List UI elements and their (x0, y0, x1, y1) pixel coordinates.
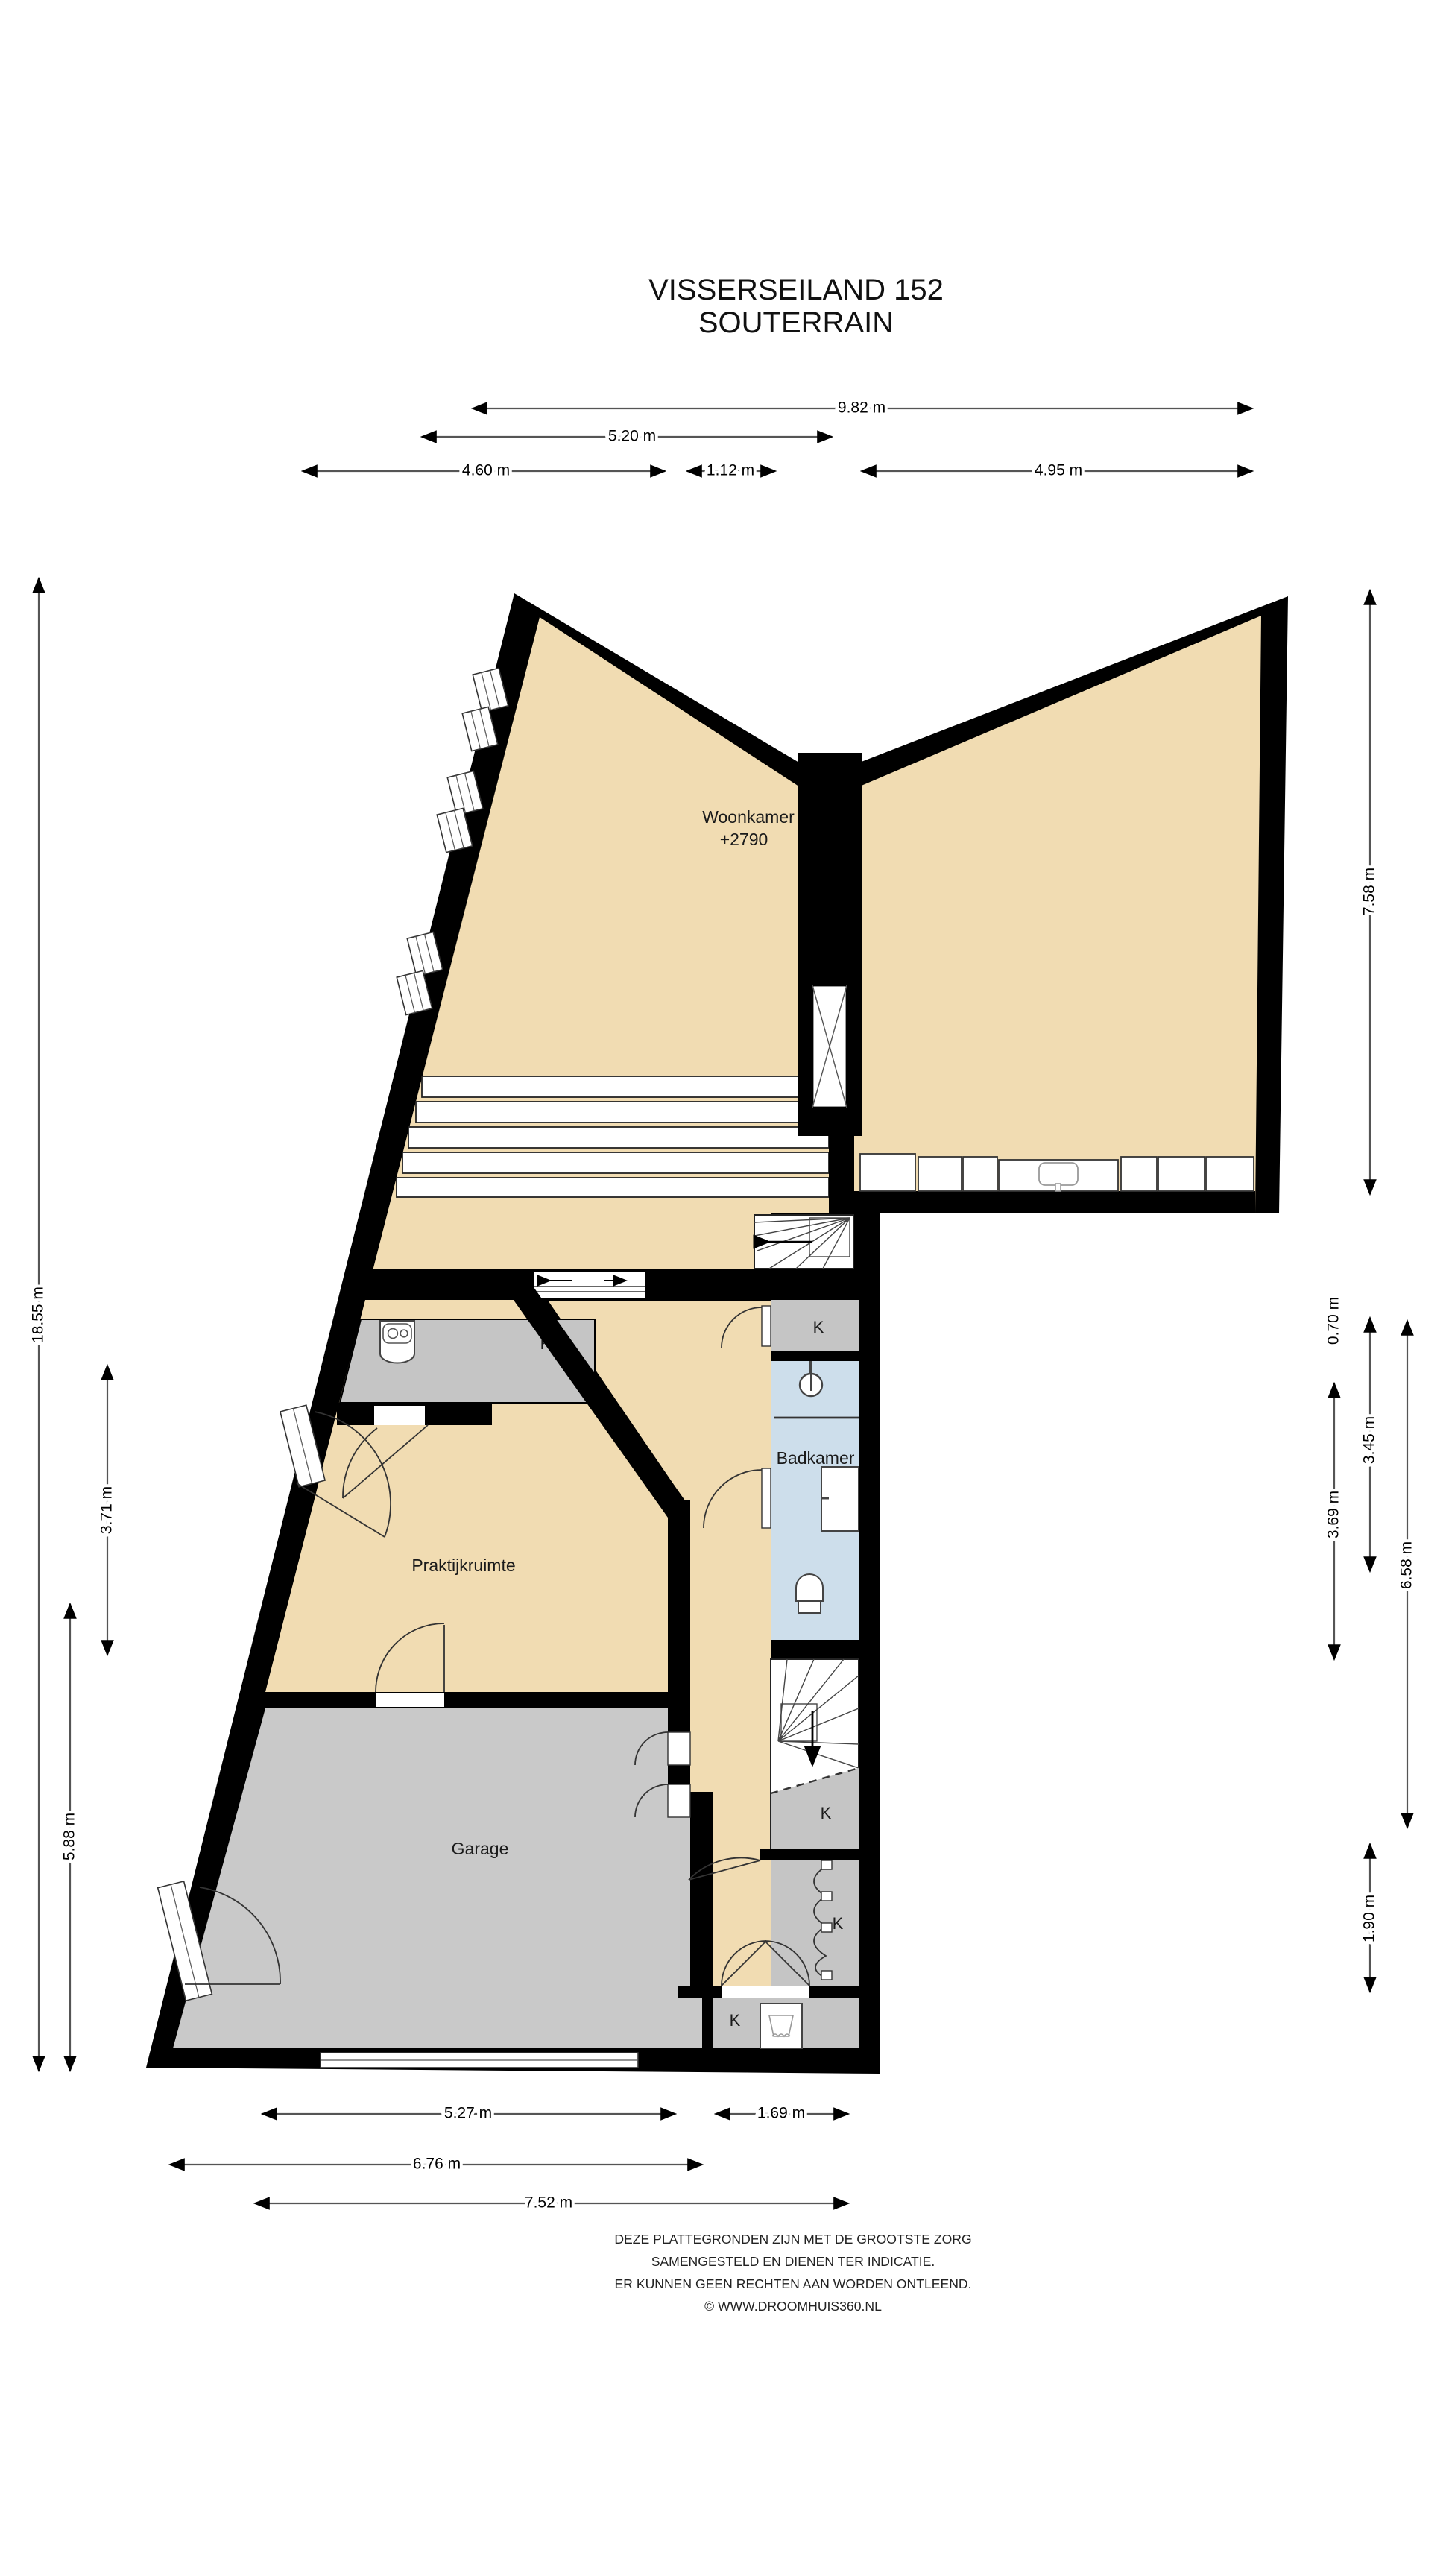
kitchen-counter (860, 1154, 1254, 1191)
disclaimer-line4: © WWW.DROOMHUIS360.NL (704, 2299, 882, 2314)
badkamer-north-wall (771, 1351, 859, 1361)
understair-wall (760, 1849, 859, 1860)
dim-bottom-752: 7.52 m (525, 2194, 572, 2212)
floorplan-page: VISSERSEILAND 152 SOUTERRAIN (0, 0, 1449, 2576)
disclaimer-line2: SAMENGESTELD EN DIENEN TER INDICATIE. (651, 2254, 935, 2269)
dim-right-190: 1.90 m (1361, 1895, 1378, 1942)
dim-right-658: 6.58 m (1398, 1541, 1415, 1589)
garage-floor (173, 1708, 713, 2048)
praktijkruimte-label: Praktijkruimte (411, 1556, 515, 1575)
closet-label-understair: K (821, 1804, 832, 1822)
disclaimer-line1: DEZE PLATTEGRONDEN ZIJN MET DE GROOTSTE … (614, 2232, 971, 2247)
dim-right-070: 0.70 m (1325, 1297, 1342, 1345)
dim-left-1855: 18.55 m (30, 1287, 47, 1343)
garage-label: Garage (452, 1839, 509, 1858)
dim-top-112: 1.12 m (707, 462, 754, 479)
dim-left-371: 3.71 m (98, 1486, 116, 1534)
upper-stairs (754, 1215, 854, 1269)
dim-bottom-169: 1.69 m (757, 2105, 805, 2122)
woonkamer-steps (397, 1076, 829, 1197)
floor-plan-canvas: VISSERSEILAND 152 SOUTERRAIN (0, 0, 1449, 2576)
dim-top-520: 5.20 m (608, 428, 656, 445)
closet-label-hall: K (813, 1318, 824, 1336)
closet-label-bottom: K (730, 2011, 741, 2030)
title-line2: SOUTERRAIN (698, 306, 894, 339)
closet-label-bifold: K (833, 1914, 844, 1933)
garage-bottom-window (321, 2053, 638, 2068)
dimensions-right: 7.58 m 0.70 m 3.45 m 3.69 m 6.58 m 1.90 … (1325, 590, 1415, 1992)
dimensions-bottom: 5.27 m 1.69 m 6.76 m 7.52 m (170, 2105, 848, 2212)
woonkamer-south-wall (829, 1191, 1255, 1213)
dim-top-982: 9.82 m (838, 400, 885, 417)
disclaimer: DEZE PLATTEGRONDEN ZIJN MET DE GROOTSTE … (614, 2232, 971, 2314)
badkamer-label: Badkamer (777, 1448, 855, 1468)
hall-west-wall-lower (690, 1796, 713, 1998)
dimensions-left: 18.55 m 3.71 m 5.88 m (30, 578, 116, 2071)
dim-bottom-527: 5.27 m (444, 2105, 492, 2122)
dim-left-588: 5.88 m (61, 1813, 78, 1860)
disclaimer-line3: ER KUNNEN GEEN RECHTEN AAN WORDEN ONTLEE… (615, 2276, 972, 2291)
hall-west-wall (668, 1500, 690, 1817)
dim-top-460: 4.60 m (462, 462, 510, 479)
dim-bottom-676: 6.76 m (413, 2156, 461, 2173)
stair-side-wall (854, 1213, 880, 1269)
dimensions-top: 9.82 m 5.20 m 4.60 m 1.12 m 4.95 m (303, 400, 1252, 479)
toilet-icon (796, 1574, 823, 1613)
dim-right-345: 3.45 m (1361, 1416, 1378, 1464)
title-line1: VISSERSEILAND 152 (648, 274, 944, 306)
woonkamer-label: Woonkamer (702, 807, 795, 827)
bifold-closet: K (771, 1860, 859, 1986)
dim-right-369: 3.69 m (1325, 1491, 1342, 1538)
washbasin (760, 2004, 802, 2048)
badkamer-south-wall (771, 1640, 859, 1659)
dim-right-758: 7.58 m (1361, 868, 1378, 915)
sliding-door-wall (365, 1269, 880, 1300)
plan-title: VISSERSEILAND 152 SOUTERRAIN (648, 274, 944, 339)
woonkamer-level-label: +2790 (720, 830, 768, 849)
lower-stairs: K (771, 1659, 859, 1849)
dim-top-495: 4.95 m (1035, 462, 1082, 479)
